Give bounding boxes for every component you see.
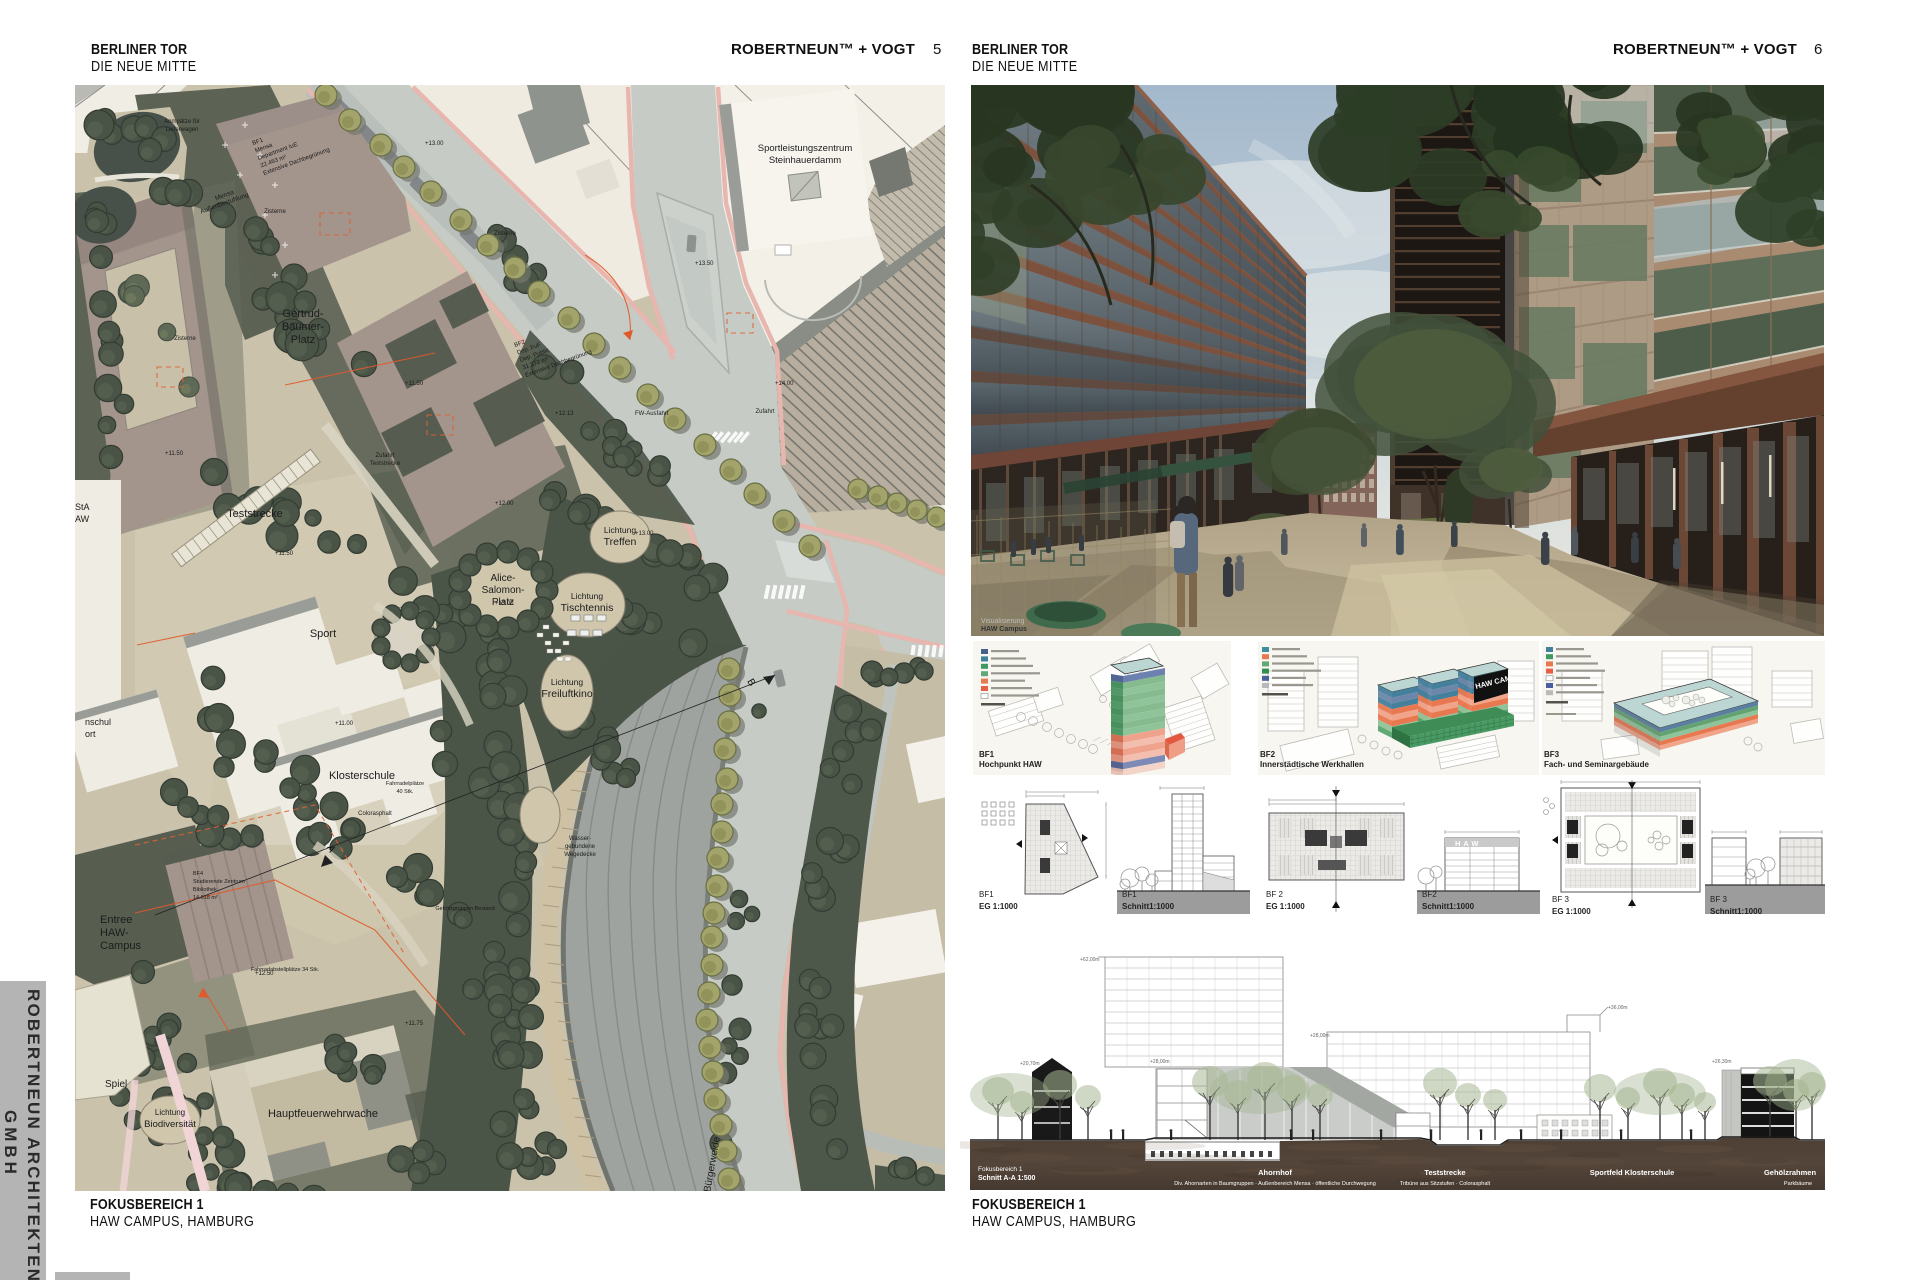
svg-text:+12.50: +12.50 — [255, 971, 274, 977]
svg-text:+13.00: +13.00 — [425, 141, 444, 147]
svg-text:HAW Campus: HAW Campus — [981, 626, 1027, 633]
svg-text:40 Stk.: 40 Stk. — [396, 789, 414, 795]
svg-text:Lichtung: Lichtung — [571, 591, 603, 601]
svg-text:Sportleistungszentrum: Sportleistungszentrum — [758, 143, 853, 154]
svg-text:+13.00: +13.00 — [495, 601, 514, 607]
svg-text:Schnitt1:1000: Schnitt1:1000 — [1422, 902, 1475, 911]
svg-text:Wasser-: Wasser- — [569, 836, 591, 842]
svg-text:BF1: BF1 — [979, 890, 994, 899]
svg-text:Fach- und Seminargebäude: Fach- und Seminargebäude — [1544, 760, 1649, 769]
svg-text:Hauptfeuerwehrwache: Hauptfeuerwehrwache — [268, 1108, 378, 1120]
svg-text:Lichtung: Lichtung — [551, 677, 583, 687]
svg-text:+28,00m: +28,00m — [1150, 1059, 1170, 1065]
svg-text:Schnitt1:1000: Schnitt1:1000 — [1710, 907, 1763, 916]
svg-text:Lieferwagen: Lieferwagen — [166, 127, 199, 133]
svg-text:Zufahrt: Zufahrt — [375, 453, 394, 459]
svg-text:Teststrecke: Teststrecke — [227, 508, 283, 520]
svg-text:Freiluftkino: Freiluftkino — [541, 688, 593, 700]
svg-text:Sportfeld Klosterschule: Sportfeld Klosterschule — [1590, 1168, 1675, 1177]
svg-text:Zufahrt: Zufahrt — [755, 409, 774, 415]
svg-text:Treffen: Treffen — [604, 536, 637, 548]
svg-text:BF2: BF2 — [1260, 750, 1276, 759]
svg-text:+11.00: +11.00 — [335, 721, 354, 727]
svg-text:Lichtung: Lichtung — [155, 1108, 185, 1117]
svg-text:gebundene: gebundene — [565, 844, 596, 850]
svg-text:Gehölzrahmen: Gehölzrahmen — [1764, 1168, 1817, 1177]
svg-text:Teststrecke: Teststrecke — [370, 461, 401, 467]
svg-text:Fokusbereich 1: Fokusbereich 1 — [978, 1166, 1023, 1173]
svg-text:+36,00m: +36,00m — [1608, 1005, 1628, 1011]
svg-text:+11.50: +11.50 — [405, 381, 424, 387]
svg-text:Zisterne: Zisterne — [494, 231, 516, 237]
svg-text:Entree: Entree — [100, 914, 132, 926]
svg-text:EG 1:1000: EG 1:1000 — [1552, 907, 1591, 916]
svg-text:+13.50: +13.50 — [695, 261, 714, 267]
svg-text:+13.00: +13.00 — [635, 531, 654, 537]
svg-text:Wegedecke: Wegedecke — [564, 852, 596, 858]
svg-text:Div. Ahornarten in Baumgruppen: Div. Ahornarten in Baumgruppen · Außenbe… — [1174, 1181, 1376, 1187]
svg-text:+11.75: +11.75 — [405, 1021, 424, 1027]
svg-text:+12.13: +12.13 — [555, 411, 574, 417]
svg-text:BF1: BF1 — [1122, 890, 1137, 899]
svg-text:Hochpunkt HAW: Hochpunkt HAW — [979, 760, 1042, 769]
svg-text:Platz: Platz — [291, 334, 315, 346]
svg-text:BF1: BF1 — [979, 750, 995, 759]
svg-text:Biodiversität: Biodiversität — [144, 1119, 196, 1130]
svg-text:Salomon-: Salomon- — [482, 585, 525, 596]
svg-text:BF 2: BF 2 — [1266, 890, 1283, 899]
svg-text:Fahrradelplätze: Fahrradelplätze — [386, 781, 424, 787]
svg-text:HAW: HAW — [1455, 839, 1482, 848]
svg-text:Zisterne: Zisterne — [174, 336, 196, 342]
svg-text:Spiel: Spiel — [105, 1079, 127, 1090]
svg-text:BF3: BF3 — [1544, 750, 1560, 759]
svg-text:Colorasphalt: Colorasphalt — [358, 811, 392, 817]
svg-text:FW-Ausfahrt: FW-Ausfahrt — [635, 411, 669, 417]
svg-text:BF 3: BF 3 — [1552, 895, 1569, 904]
svg-text:+11.50: +11.50 — [165, 451, 184, 457]
svg-text:Tischtennis: Tischtennis — [561, 602, 614, 614]
svg-text:+14.00: +14.00 — [775, 381, 794, 387]
svg-text:Anmpätze für: Anmpätze für — [164, 119, 200, 125]
svg-text:Lichtung: Lichtung — [604, 525, 636, 535]
svg-text:GMBH: GMBH — [1, 1110, 20, 1178]
svg-text:Parkbäume: Parkbäume — [1784, 1181, 1812, 1187]
svg-text:Bibliothek: Bibliothek — [193, 887, 217, 893]
svg-text:Steinhauerdamm: Steinhauerdamm — [769, 155, 841, 166]
svg-text:Gertrud-: Gertrud- — [283, 308, 324, 320]
svg-text:Campus: Campus — [100, 940, 141, 952]
svg-text:BF2: BF2 — [1422, 890, 1437, 899]
svg-text:Gehölzgruppen Bestand: Gehölzgruppen Bestand — [435, 906, 494, 912]
svg-text:+11.50: +11.50 — [275, 551, 294, 557]
svg-text:Ahornhof: Ahornhof — [1258, 1168, 1292, 1177]
svg-text:Tribüne aus Sitzstufen · Color: Tribüne aus Sitzstufen · Colorasphalt — [1400, 1181, 1491, 1187]
svg-text:ROBERTNEUN ARCHITEKTEN: ROBERTNEUN ARCHITEKTEN — [24, 989, 43, 1280]
svg-text:Schnitt1:1000: Schnitt1:1000 — [1122, 902, 1175, 911]
svg-text:+12.00: +12.00 — [495, 501, 514, 507]
svg-text:ort: ort — [85, 729, 96, 739]
svg-text:BF4: BF4 — [193, 871, 203, 877]
svg-text:Bäumer-: Bäumer- — [282, 321, 325, 333]
svg-text:nschul: nschul — [85, 717, 111, 727]
svg-text:BF 3: BF 3 — [1710, 895, 1727, 904]
svg-text:HAW-: HAW- — [100, 927, 129, 939]
svg-text:Zisterne: Zisterne — [264, 209, 286, 215]
svg-text:+26,30m: +26,30m — [1712, 1059, 1732, 1065]
svg-text:Schnitt A-A 1:500: Schnitt A-A 1:500 — [978, 1175, 1036, 1182]
svg-text:AW: AW — [75, 514, 90, 524]
svg-text:EG 1:1000: EG 1:1000 — [979, 902, 1018, 911]
svg-text:Sport: Sport — [310, 628, 336, 640]
svg-text:+62,00m: +62,00m — [1080, 957, 1100, 963]
svg-text:+20,70m: +20,70m — [1020, 1061, 1040, 1067]
svg-text:Studierende Zentrum: Studierende Zentrum — [193, 879, 245, 885]
svg-text:Innerstädtische Werkhallen: Innerstädtische Werkhallen — [1260, 760, 1364, 769]
svg-text:Alice-: Alice- — [490, 573, 515, 584]
svg-text:EG 1:1000: EG 1:1000 — [1266, 902, 1305, 911]
svg-text:Teststrecke: Teststrecke — [1424, 1168, 1465, 1177]
svg-text:14.618 m²: 14.618 m² — [193, 895, 218, 901]
svg-text:+28,00m: +28,00m — [1310, 1033, 1330, 1039]
svg-text:StA: StA — [75, 502, 90, 512]
svg-text:Visualisierung: Visualisierung — [981, 618, 1025, 625]
